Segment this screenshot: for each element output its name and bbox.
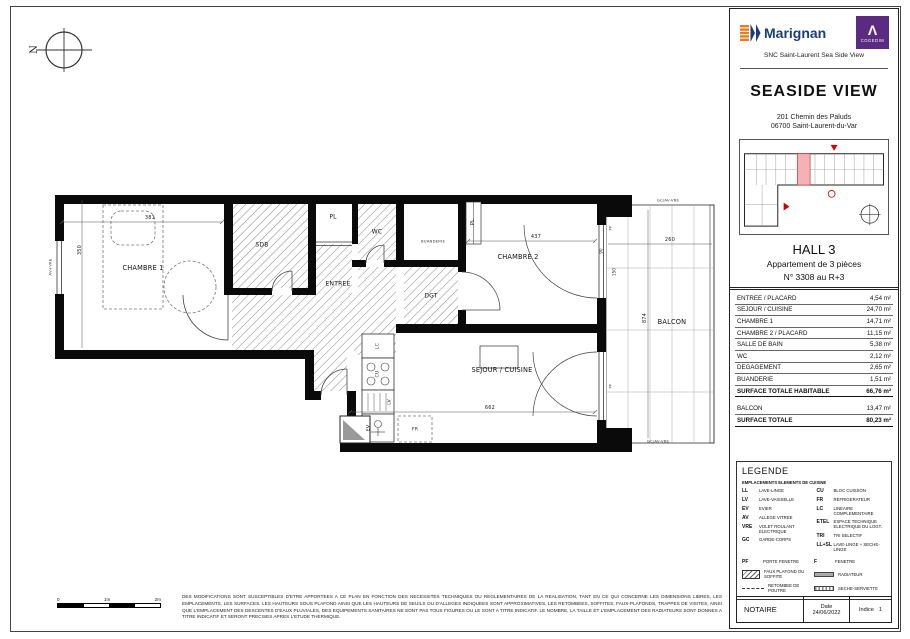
table-row: WC 2,12 m² — [735, 350, 893, 362]
dim-balcon-height: 874 — [642, 313, 648, 323]
snc-line: SNC Saint-Laurent Sea Side View — [730, 52, 898, 59]
area-label: BALCON — [735, 403, 841, 414]
area-value: 11,15 m² — [857, 327, 893, 339]
legend-label: SECHE-SERVIETTE — [838, 586, 878, 591]
room-label-chambre2: CHAMBRE 2 — [497, 253, 538, 261]
legend-abbr: ETEL — [817, 519, 834, 529]
legend-abbr: LL — [742, 488, 759, 494]
legend-label: EVIER — [759, 506, 772, 512]
dim-balcon-width: 260 — [665, 237, 675, 243]
legend-item: CUBLOC CUISSON — [817, 488, 887, 494]
area-value: 66,76 m² — [857, 385, 893, 397]
project-title: SEASIDE VIEW — [730, 83, 898, 101]
date-cell: Date 24/06/2022 — [803, 597, 849, 622]
legend-label: RETOMBEE DE POUTRE — [768, 583, 814, 593]
legend-abbr: EV — [742, 506, 759, 512]
divider — [740, 68, 888, 69]
legend-abbr: GC — [742, 537, 759, 543]
area-value: 80,23 m² — [841, 414, 893, 426]
room-label-balcon: BALCON — [658, 318, 687, 326]
apartment-number: N° 3308 au R+3 — [730, 272, 898, 282]
key-plan-drawing — [740, 140, 888, 234]
table-row: ENTREE / PLACARD 4,54 m² — [735, 293, 893, 304]
legend-label: GARDE-CORPS — [759, 537, 791, 543]
legend-label: ALLEGE VITREE — [759, 515, 792, 521]
project-address-line1: 201 Chemin des Paluds — [730, 114, 898, 121]
legend-label: RADIATEUR — [838, 572, 863, 577]
cogedim-logo: Λ COGEDIM — [856, 16, 889, 49]
legend-abbr: LC — [817, 506, 834, 516]
legend-item: EVEVIER — [742, 506, 812, 512]
cogedim-mark-icon: Λ — [868, 23, 877, 37]
table-row-total-habitable: SURFACE TOTALE HABITABLE 66,76 m² — [735, 385, 893, 397]
legend-abbr: LL+SL — [817, 542, 834, 552]
marignan-wordmark: Marignan — [764, 25, 826, 41]
marignan-logo: Marignan — [739, 22, 826, 44]
legend-item: LCLINEAIRE COMPLEMENTAIRE — [817, 506, 887, 516]
footer-bar: NOTAIRE Date 24/06/2022 Indice 1 — [736, 596, 892, 623]
legend-abbr: AV — [742, 515, 759, 521]
compass-north-label: N — [29, 45, 40, 54]
floor-plan: CHAMBRE 1 SDB PL WC BUANDERIE PL DGT ENT… — [0, 0, 728, 639]
legend-item-pf: PF PORTE FENETRE — [742, 559, 814, 565]
room-label-pl2: PL — [470, 219, 476, 225]
dim-chambre1-height: 350 — [77, 245, 83, 255]
legend-label: LAVE-LINGE — [759, 488, 784, 494]
room-label-dgt: DGT — [424, 293, 437, 300]
indice-value: 1 — [879, 607, 882, 613]
indice-label: Indice — [859, 607, 874, 613]
floor-plan-drawing — [0, 0, 728, 639]
marignan-icon — [739, 22, 761, 44]
legend-label: LAVE-VAISSELLE — [759, 497, 794, 503]
radiator-swatch-icon — [814, 572, 834, 577]
legend-abbr: VRE — [742, 524, 759, 534]
indice-cell: Indice 1 — [849, 597, 891, 622]
dim-chambre2-width: 437 — [531, 234, 541, 240]
area-value: 14,71 m² — [857, 316, 893, 328]
annotation-left-window: AV+VRE — [48, 259, 53, 276]
title-block: Marignan Λ COGEDIM SNC Saint-Laurent Sea… — [729, 8, 899, 629]
dim-door-a: 90 — [599, 248, 604, 254]
legend-label: TRI SELECTIF — [834, 533, 863, 539]
area-value: 5,38 m² — [857, 339, 893, 351]
double-rule — [730, 287, 898, 290]
room-label-pl: PL — [329, 214, 336, 221]
area-label: DEGAGEMENT — [735, 362, 857, 374]
towel-dryer-icon — [814, 586, 834, 591]
legend-abbr: FR — [817, 497, 834, 503]
legend-label: REFRIGERATEUR — [834, 497, 870, 503]
kitchen-label-ev: EV — [367, 425, 372, 431]
legend-item: LLLAVE-LINGE — [742, 488, 812, 494]
area-label: SURFACE TOTALE — [735, 414, 841, 426]
table-row-total: SURFACE TOTALE 80,23 m² — [735, 414, 893, 426]
legend-abbr: F — [814, 559, 831, 565]
scale-bar-graphic — [57, 603, 161, 608]
legend-label: FAUX PLAFOND OU SOFFITE — [764, 569, 814, 579]
legend-subtitle: EMPLACEMENTS ELEMENTS DE CUISINE — [742, 480, 886, 485]
scale-bar: 0 1m 2m — [57, 597, 161, 608]
table-row: CHAMBRE 1 14,71 m² — [735, 316, 893, 328]
date-value: 24/06/2022 — [813, 610, 841, 616]
room-label-wc: WC — [372, 229, 383, 236]
legend-item: AVALLEGE VITREE — [742, 515, 812, 521]
hall-title: HALL 3 — [730, 242, 898, 257]
notaire-cell: NOTAIRE — [737, 597, 803, 622]
room-label-sdb: SDB — [255, 242, 268, 249]
apartment-type: Appartement de 3 pièces — [730, 259, 898, 269]
legend-label: BLOC CUISSON — [834, 488, 866, 494]
legend-item: GCGARDE-CORPS — [742, 537, 812, 543]
annotation-balcony-top: GC/AV-VRE — [657, 198, 679, 203]
legend-item: ETELESPACE TECHNIQUE ELECTRIQUE DU LOGT. — [817, 519, 887, 529]
legend-label: PORTE FENETRE — [763, 559, 799, 564]
legend-item-f: F FENETRE — [814, 559, 886, 565]
plan-sheet: CHAMBRE 1 SDB PL WC BUANDERIE PL DGT ENT… — [0, 0, 910, 639]
table-row: BUANDERIE 1,51 m² — [735, 374, 893, 386]
area-label: WC — [735, 350, 857, 362]
annotation-pf-sejour: PF — [608, 384, 613, 389]
scale-one: 1m — [104, 597, 110, 602]
area-label: SALLE DE BAIN — [735, 339, 857, 351]
legend-item: FRREFRIGERATEUR — [817, 497, 887, 503]
room-label-entree: ENTREE — [326, 281, 351, 288]
key-plan — [739, 139, 889, 235]
table-row: SEJOUR / CUISINE 24,70 m² — [735, 304, 893, 316]
room-label-chambre1: CHAMBRE 1 — [122, 264, 163, 272]
kitchen-label-lc: LC — [376, 343, 381, 349]
area-label: CHAMBRE 1 — [735, 316, 857, 328]
legend-abbr: CU — [817, 488, 834, 494]
area-value: 24,70 m² — [857, 304, 893, 316]
disclaimer-text: DES MODIFICATIONS SONT SUSCEPTIBLES D'ET… — [182, 594, 722, 621]
table-row: CHAMBRE 2 / PLACARD 11,15 m² — [735, 327, 893, 339]
areas-table: ENTREE / PLACARD 4,54 m² SEJOUR / CUISIN… — [735, 293, 893, 397]
room-label-buanderie: BUANDERIE — [421, 239, 445, 244]
area-label: BUANDERIE — [735, 374, 857, 386]
legend-item: VREVOLET ROULANT ELECTRIQUE — [742, 524, 812, 534]
area-value: 2,65 m² — [857, 362, 893, 374]
legend-label: LAVE-LINGE + SECHE-LINGE — [834, 542, 887, 552]
annotation-pf-chambre2: PF — [608, 226, 613, 231]
legend-item-radiateur: RADIATEUR — [814, 569, 886, 579]
notaire-label: NOTAIRE — [744, 605, 777, 614]
area-label: ENTREE / PLACARD — [735, 293, 857, 304]
legend-item-retombee: RETOMBEE DE POUTRE — [742, 583, 814, 593]
legend-item-faux-plafond: FAUX PLAFOND OU SOFFITE — [742, 569, 814, 579]
legend-label: FENETRE — [835, 559, 855, 564]
dim-chambre1-width: 381 — [145, 215, 155, 221]
table-row: SALLE DE BAIN 5,38 m² — [735, 339, 893, 351]
table-row: DEGAGEMENT 2,65 m² — [735, 362, 893, 374]
area-value: 1,51 m² — [857, 374, 893, 386]
area-label: CHAMBRE 2 / PLACARD — [735, 327, 857, 339]
legend-abbr: LV — [742, 497, 759, 503]
beam-dash-icon — [742, 588, 764, 589]
kitchen-label-cu: CU — [376, 371, 381, 378]
cogedim-wordmark: COGEDIM — [861, 38, 885, 43]
legend-box: LEGENDE EMPLACEMENTS ELEMENTS DE CUISINE… — [736, 461, 892, 600]
legend-label: LINEAIRE COMPLEMENTAIRE — [834, 506, 887, 516]
legend-title: LEGENDE — [742, 466, 886, 476]
scale-two: 2m — [155, 597, 161, 602]
legend-abbr: TRI — [817, 533, 834, 539]
project-address-line2: 06700 Saint-Laurent-du-Var — [730, 123, 898, 130]
legend-item-seche-serviette: SECHE-SERVIETTE — [814, 583, 886, 593]
area-value: 2,12 m² — [857, 350, 893, 362]
kitchen-label-lv: LV — [388, 399, 393, 405]
area-value: 13,47 m² — [841, 403, 893, 414]
areas-table-totals: BALCON 13,47 m² SURFACE TOTALE 80,23 m² — [735, 403, 893, 426]
logo-row: Marignan Λ COGEDIM — [730, 9, 898, 49]
table-row-balcon: BALCON 13,47 m² — [735, 403, 893, 414]
legend-item: TRITRI SELECTIF — [817, 533, 887, 539]
area-value: 4,54 m² — [857, 293, 893, 304]
hatch-swatch-icon — [742, 570, 760, 579]
legend-label: ESPACE TECHNIQUE ELECTRIQUE DU LOGT. — [834, 519, 887, 529]
legend-abbr: PF — [742, 559, 759, 565]
annotation-balcony-bottom: GC/AV-VRE — [647, 439, 669, 444]
legend-item: LVLAVE-VAISSELLE — [742, 497, 812, 503]
room-label-sejour: SEJOUR / CUISINE — [471, 366, 532, 374]
area-label: SURFACE TOTALE HABITABLE — [735, 385, 857, 397]
kitchen-label-fr: FR — [412, 428, 418, 433]
legend-label: VOLET ROULANT ELECTRIQUE — [759, 524, 812, 534]
scale-zero: 0 — [57, 597, 60, 602]
dim-sejour-width: 662 — [485, 405, 495, 411]
legend-item: LL+SLLAVE-LINGE + SECHE-LINGE — [817, 542, 887, 552]
area-label: SEJOUR / CUISINE — [735, 304, 857, 316]
dim-door-b: 150 — [612, 268, 617, 276]
north-compass-icon: N — [30, 24, 94, 80]
